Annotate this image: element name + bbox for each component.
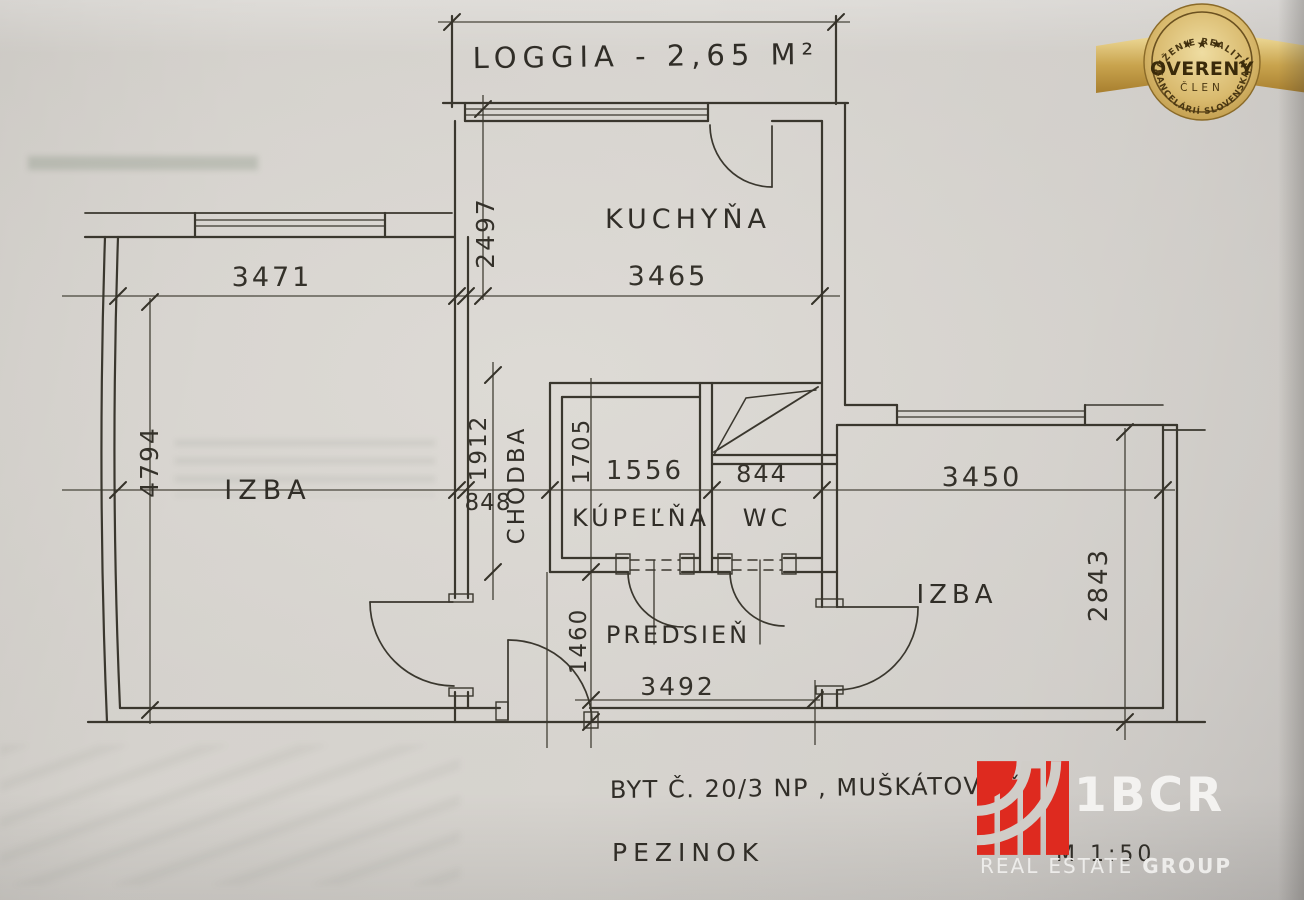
overeny-clen-badge: ZDRUŽENIE REALITNÝCH ★ ★ ★ OVERENÝ ČLEN … [1092, 0, 1304, 152]
dim-hall-depth: 1460 [566, 608, 592, 675]
label-room-right: IZBA [916, 580, 997, 610]
brand-tagline-group: GROUP [1142, 854, 1232, 878]
brand-tagline-real: REAL [980, 854, 1039, 878]
dim-room-left-width: 3471 [232, 262, 313, 293]
dim-room-right-depth: 2843 [1084, 548, 1114, 622]
label-room-left: IZBA [224, 475, 311, 506]
dim-room-right-width: 3450 [942, 462, 1023, 493]
brand-logo-block: 1BCR REAL ESTATE GROUP [960, 742, 1304, 900]
brand-name: 1BCR [1074, 772, 1225, 819]
scanned-floor-plan: LOGGIA - 2,65 M² KUCHYŇA IZBA IZBA KÚPEĽ… [0, 0, 1304, 900]
dim-wc-width: 844 [736, 460, 788, 488]
dim-kitchen-width: 3465 [628, 261, 709, 292]
brand-tagline-estate: ESTATE [1048, 854, 1133, 878]
label-bathroom: KÚPEĽŇA [572, 502, 710, 532]
dim-corridor-length: 1912 [466, 415, 492, 482]
dim-room-left-depth: 4794 [135, 426, 164, 498]
city-line: PEZINOK [612, 838, 764, 867]
label-kitchen: KUCHYŇA [605, 203, 771, 235]
brand-tagline: REAL ESTATE GROUP [980, 854, 1232, 878]
dim-bathroom-width: 1556 [606, 456, 684, 486]
walls [85, 16, 1205, 722]
label-wc: WC [743, 504, 792, 532]
badge-stars: ★ ★ ★ [1182, 37, 1222, 51]
dim-corridor-width: 848 [465, 490, 512, 516]
label-hall: PREDSIEŇ [606, 620, 750, 649]
dim-bathroom-depth: 1705 [569, 418, 595, 485]
dim-hall-width: 3492 [640, 672, 716, 701]
badge-title: OVERENÝ [1150, 56, 1254, 80]
brand-logo-mark [977, 761, 1069, 855]
label-loggia: LOGGIA - 2,65 M² [472, 37, 819, 75]
label-corridor: CHODBA [504, 426, 530, 545]
badge-subtitle: ČLEN [1180, 81, 1224, 94]
dim-kitchen-depth: 2497 [471, 197, 500, 269]
